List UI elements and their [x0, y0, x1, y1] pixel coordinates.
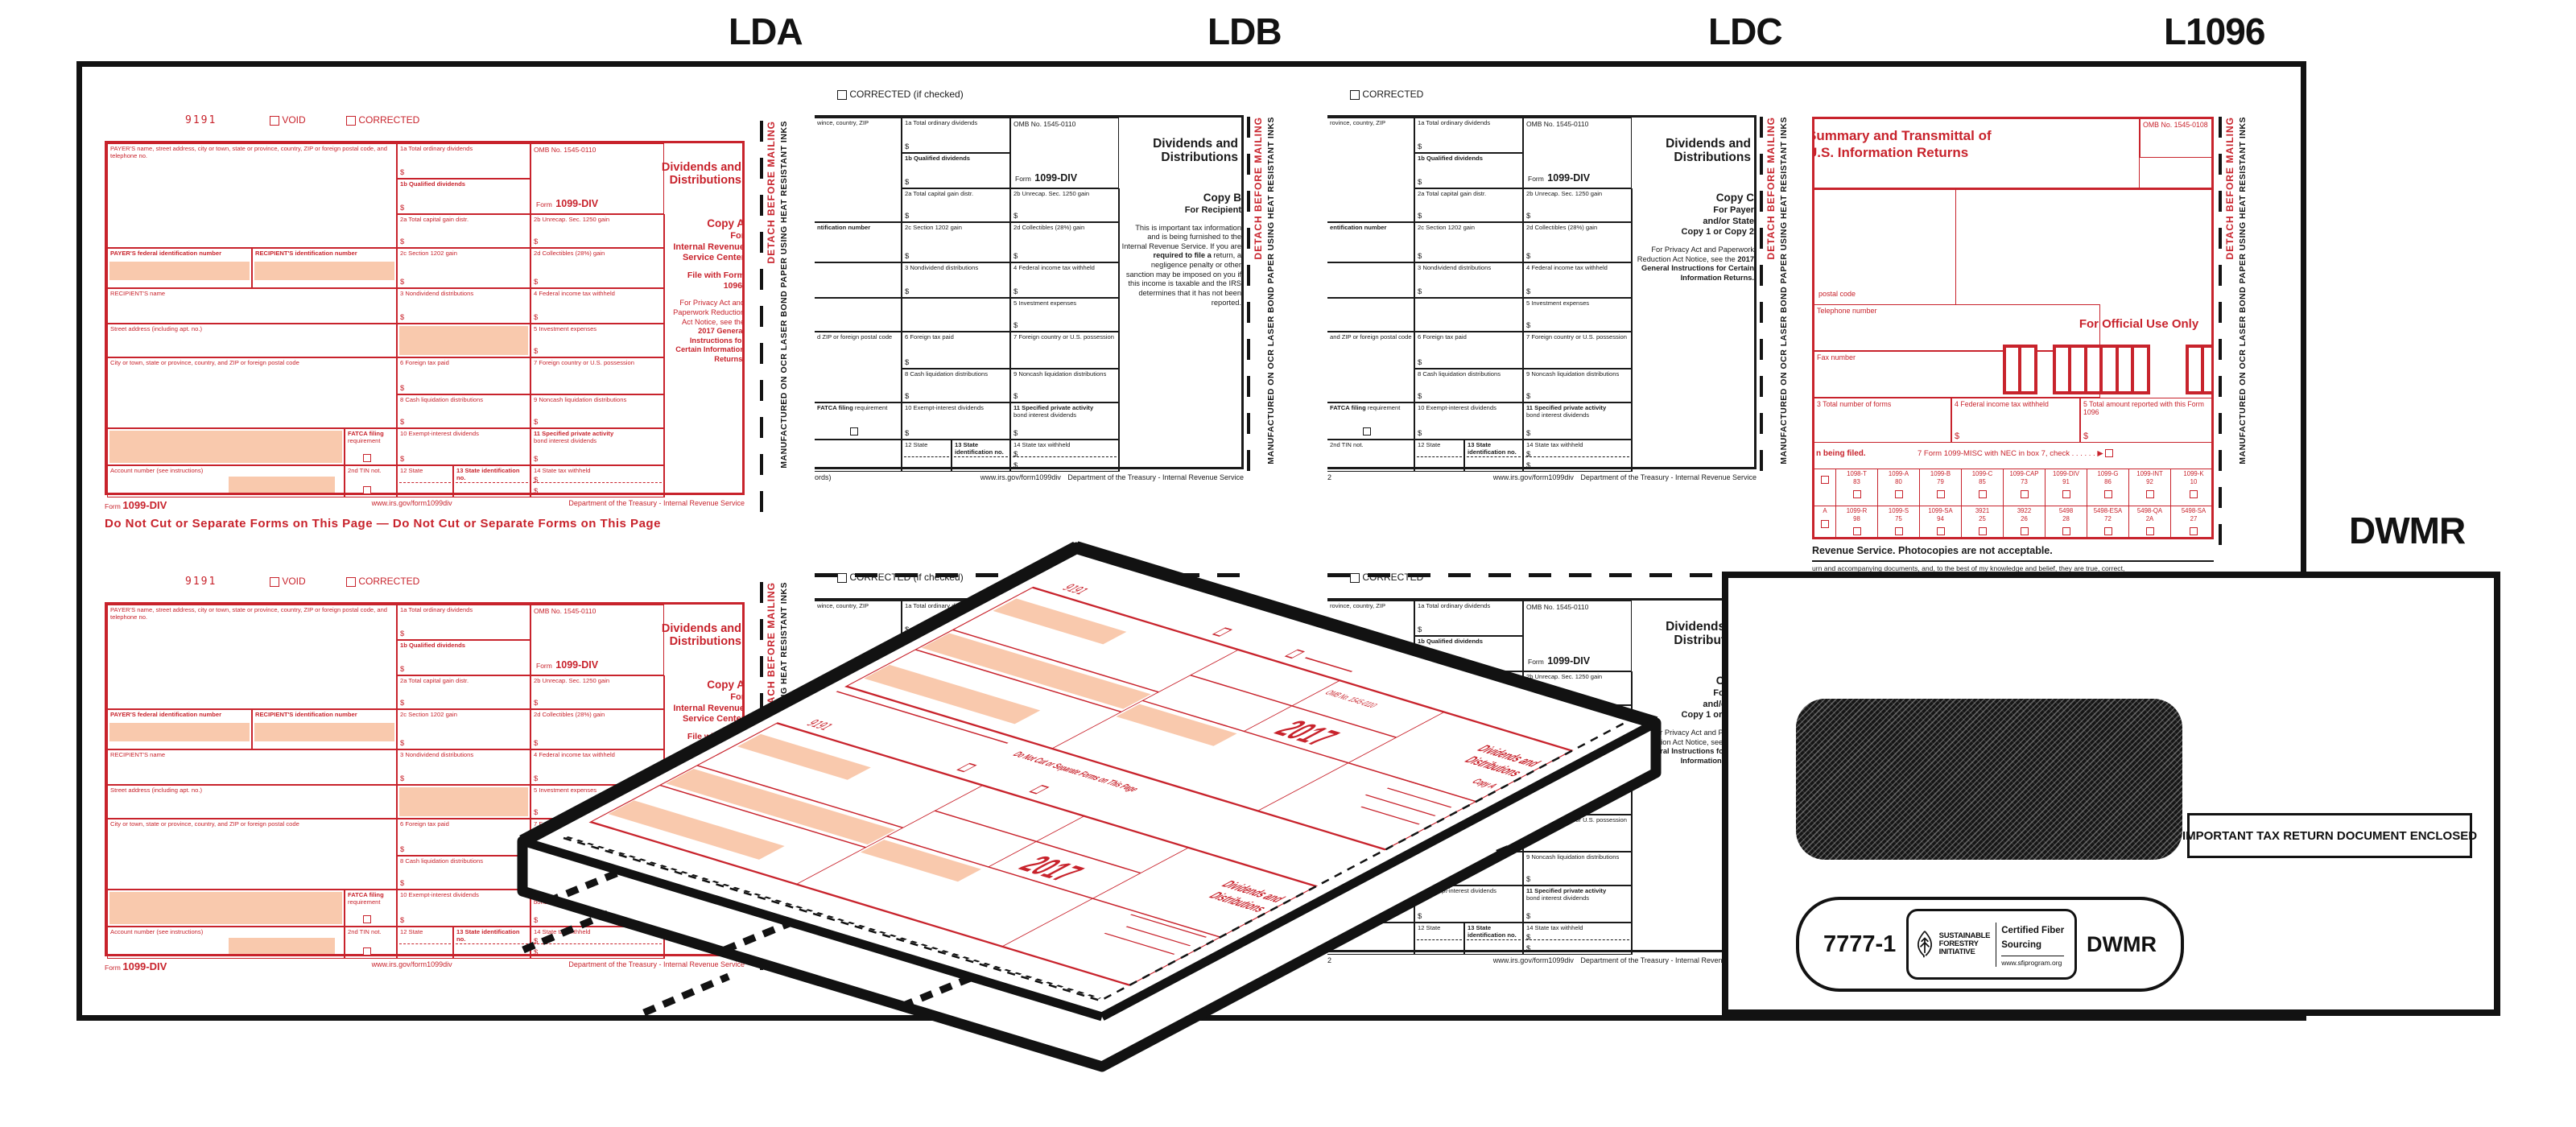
- grid-cell: 1098-T83: [1835, 469, 1877, 506]
- form-word: Form: [1015, 175, 1031, 183]
- grid-checkbox-icon: [1979, 490, 1987, 498]
- fatca-label2: requirement: [348, 437, 381, 444]
- box-1a-cell: 1a Total ordinary dividends$: [902, 118, 1010, 153]
- scan-code: 9191: [185, 576, 217, 588]
- dollar-sign: $: [534, 237, 538, 246]
- grid-cell: 1099-INT92: [2128, 469, 2170, 506]
- dollar-sign: $: [1418, 358, 1422, 367]
- corrected-label: CORRECTED (if checked): [849, 89, 963, 100]
- box-9-cell: 9 Noncash liquidation distributions$: [530, 394, 664, 428]
- grid-cell: 1099-G86: [2087, 469, 2128, 506]
- comb-box: [2131, 345, 2150, 394]
- copy-for-line2: Internal Revenue: [667, 242, 745, 254]
- box-1a-label: 1a Total ordinary dividends: [1418, 120, 1521, 127]
- footer-dept: Department of the Treasury - Internal Re…: [1067, 473, 1244, 481]
- fatca-label: FATCA filing: [817, 404, 853, 411]
- grid-cell: 5498-QA2A: [2128, 506, 2170, 539]
- city-label: City or town, state or province, country…: [110, 360, 394, 367]
- tin-label: 2nd TIN not.: [348, 929, 394, 936]
- important-document-banner: IMPORTANT TAX RETURN DOCUMENT ENCLOSED: [2187, 813, 2472, 858]
- dollar-sign: $: [905, 287, 909, 296]
- box-8-label: 8 Cash liquidation distributions: [400, 397, 528, 404]
- omb-label: OMB No. 1545-0110: [1013, 120, 1117, 128]
- box-1b-cell: 1b Qualified dividends$: [397, 179, 530, 214]
- recipient-name-cell: RECIPIENT'S name: [107, 749, 397, 785]
- note-head: For Privacy Act and Paperwork Reduction …: [673, 299, 745, 325]
- payer-name-cell: wince, country, ZIP: [815, 118, 902, 222]
- grid-cell-partial: A: [1814, 506, 1835, 539]
- box-7-label: 7 Foreign country or U.S. possession: [1526, 334, 1629, 341]
- box-4-label: 4 Federal income tax withheld: [1955, 400, 2078, 408]
- recipient-name-cell: [815, 262, 902, 298]
- grid-checkbox-icon: [1895, 527, 1903, 535]
- dollar-sign: $: [1418, 212, 1422, 221]
- dollar-sign: $: [905, 212, 909, 221]
- grid-checkbox-icon: [1937, 490, 1945, 498]
- dollar-sign: $: [400, 455, 404, 464]
- dollar-sign: $: [1418, 392, 1422, 401]
- grid-checkbox-icon: [2146, 527, 2154, 535]
- envelope-part-number: 7777-1: [1823, 931, 1896, 958]
- blank-cell: [902, 298, 1010, 332]
- name-area-divider: [1955, 188, 1956, 304]
- box-2a-label: 2a Total capital gain distr.: [905, 191, 1008, 198]
- grid-checkbox-icon: [1895, 490, 1903, 498]
- copy-label: Copy A: [667, 217, 745, 231]
- form-1099div-copy-a-top: 9191 VOID CORRECTED PAYER'S name, street…: [105, 103, 745, 542]
- box-7-cell: 7 Foreign country or U.S. possession: [1523, 332, 1632, 369]
- grid-cell: 1099-R98: [1835, 506, 1877, 539]
- tin-cell: 2nd TIN not.: [345, 927, 397, 959]
- box-1b-label: 1b Qualified dividends: [1418, 155, 1521, 163]
- box-9-cell: 9 Noncash liquidation distributions$: [1523, 369, 1632, 402]
- box-12-label: 12 State: [1418, 442, 1462, 449]
- dollar-sign: $: [1526, 321, 1530, 330]
- manufactured-on-ocr-text: MANUFACTURED ON OCR LASER BOND PAPER USI…: [1779, 117, 1789, 464]
- omb-label: OMB No. 1545-0110: [1526, 120, 1629, 128]
- dollar-sign: $: [1526, 287, 1530, 296]
- dashed-rule: [1417, 456, 1462, 457]
- corrected-label: CORRECTED: [358, 114, 419, 126]
- grid-checkbox-icon: [2021, 527, 2029, 535]
- city-label: d ZIP or foreign postal code: [817, 334, 899, 341]
- box-3-label: 3 Nondividend distributions: [1418, 265, 1521, 272]
- dollar-sign: $: [1418, 429, 1422, 438]
- corrected-checkbox: CORRECTED: [346, 114, 419, 126]
- grid-form-code: 92: [2129, 478, 2170, 485]
- box-3-cell: 3 Nondividend distributions$: [1414, 262, 1523, 298]
- entry-area: [109, 723, 250, 741]
- box-2a-cell: 2a Total capital gain distr.$: [1414, 188, 1523, 222]
- dollar-sign: $: [400, 699, 404, 708]
- grid-form-name: 1098-T: [1836, 471, 1877, 478]
- box-11-label: 11 Specified private activity: [1013, 404, 1093, 411]
- recipient-id-cell: RECIPIENT'S identification number: [252, 709, 397, 749]
- product-sheet: LDA LDB LDC L1096 DWMR 9191 VOID CORRECT…: [0, 0, 2576, 1127]
- fatca-cell: FATCA filingrequirement: [345, 428, 397, 465]
- void-label: VOID: [282, 114, 305, 126]
- box-2d-cell: 2d Collectibles (28%) gain$: [1523, 222, 1632, 262]
- grid-form-name: 1099-CAP: [2004, 471, 2045, 478]
- dollar-sign: $: [400, 879, 404, 888]
- shaded-band-cell: [107, 428, 345, 465]
- box-14-cell: 14 State tax withheld$$: [1010, 440, 1119, 472]
- box-9-label: 9 Noncash liquidation distributions: [534, 397, 662, 404]
- grid-form-code: 94: [1920, 515, 1961, 522]
- box-9-label: 9 Noncash liquidation distributions: [1013, 371, 1117, 378]
- id-cell: ntification number: [815, 222, 902, 262]
- street-cell: Street address (including apt. no.): [107, 785, 397, 819]
- street-cell: [1327, 298, 1414, 332]
- box-8-cell: 8 Cash liquidation distributions$: [902, 369, 1010, 402]
- box-4-cell: 4 Federal income tax withheld$: [1951, 398, 2080, 443]
- being-filed-fragment: n being filed.: [1816, 449, 1866, 458]
- footer-left: ords): [815, 473, 832, 481]
- grid-form-code: 75: [1878, 515, 1919, 522]
- tin-cell: 2nd TIN not.: [345, 465, 397, 497]
- box-12-cell: 12 State: [1414, 440, 1464, 472]
- grid-checkbox-icon: [2104, 490, 2112, 498]
- account-cell: Account number (see instructions): [107, 465, 345, 497]
- grid-form-name: 1099-SA: [1920, 508, 1961, 515]
- box-3-label: 3 Nondividend distributions: [400, 291, 528, 298]
- box-1a-cell: 1a Total ordinary dividends$: [1414, 118, 1523, 153]
- dollar-sign: $: [2083, 431, 2088, 441]
- grid-checkbox-icon: [1853, 527, 1861, 535]
- box-2a-cell: 2a Total capital gain distr.$: [902, 188, 1010, 222]
- account-label: Account number (see instructions): [110, 929, 342, 936]
- box-5-label: 5 Investment expenses: [1526, 300, 1629, 308]
- official-use-comb-boxes: [2189, 345, 2214, 394]
- detach-before-mailing-text: DETACH BEFORE MAILING: [766, 121, 777, 263]
- dollar-sign: $: [1013, 429, 1018, 438]
- box-13-cell: 13 State identification no.: [952, 440, 1010, 472]
- box-1b-label: 1b Qualified dividends: [400, 181, 528, 188]
- omb-label: OMB No. 1545-0110: [534, 146, 662, 154]
- dollar-sign: $: [400, 845, 404, 854]
- grid-checkbox-icon: [1853, 490, 1861, 498]
- omb-cell: OMB No. 1545-0108: [2140, 119, 2214, 158]
- void-checkbox: VOID: [270, 576, 306, 587]
- manufactured-on-ocr-text: MANUFACTURED ON OCR LASER BOND PAPER USI…: [779, 121, 789, 469]
- dollar-sign: $: [905, 178, 909, 187]
- grid-form-code: 72: [2087, 515, 2128, 522]
- sfi-url: www.sfiprogram.org: [2001, 956, 2064, 967]
- dollar-sign: $: [1418, 142, 1422, 151]
- box-6-label: 6 Foreign tax paid: [400, 360, 528, 367]
- grid-form-code: 26: [2004, 515, 2045, 522]
- grid-cell: 1099-A80: [1877, 469, 1919, 506]
- box-5-cell: 5 Investment expenses$: [1523, 298, 1632, 332]
- dollar-sign: $: [400, 739, 404, 748]
- grid-checkbox-icon: [2021, 490, 2029, 498]
- box-6-label: 6 Foreign tax paid: [1418, 334, 1521, 341]
- footer-url: www.irs.gov/form1099div: [372, 960, 452, 968]
- official-use-comb-boxes: [2056, 345, 2150, 394]
- envelope-dwmr: IMPORTANT TAX RETURN DOCUMENT ENCLOSED 7…: [1722, 572, 2500, 1016]
- dollar-sign: $: [1955, 431, 1959, 441]
- grid-form-code: 86: [2087, 478, 2128, 485]
- sfi-name: SUSTAINABLEFORESTRYINITIATIVE: [1939, 932, 1991, 956]
- entry-area: [229, 938, 335, 954]
- form-1096-title-cell: Summary and Transmittal ofU.S. Informati…: [1814, 119, 2140, 188]
- box-2c-label: 2c Section 1202 gain: [905, 225, 1008, 232]
- corrected-checkbox: CORRECTED (if checked): [837, 89, 964, 100]
- id-label: ntification number: [817, 225, 899, 232]
- title-divider: [1814, 188, 2214, 190]
- grid-form-code: 73: [2004, 478, 2045, 485]
- form-1099div-copy-b-top: CORRECTED (if checked) wince, country, Z…: [815, 77, 1244, 488]
- box-14-label: 14 State tax withheld: [1013, 442, 1117, 449]
- grid-form-name: 1099-DIV: [2046, 471, 2087, 478]
- fatca-label2: requirement: [348, 898, 381, 906]
- box-2c-cell: 2c Section 1202 gain$: [902, 222, 1010, 262]
- grid-cell: 1099-S75: [1877, 506, 1919, 539]
- grid-cell: 1099-SA94: [1919, 506, 1961, 539]
- perforation-dashed-line: [760, 121, 763, 519]
- dollar-sign: $: [1418, 287, 1422, 296]
- box-13-label: 13 State identification no.: [955, 442, 1008, 456]
- sfi-cert-text: Certified FiberSourcing www.sfiprogram.o…: [1996, 923, 2064, 967]
- box-3-label: 3 Nondividend distributions: [905, 265, 1008, 272]
- perforation-dashed-line: [1247, 117, 1250, 487]
- tin-label: 2nd TIN not.: [1330, 442, 1412, 449]
- dot-leaders: . . . . . .: [2072, 449, 2095, 458]
- box-5-label: 5 Total amount reported with this Form 1…: [2083, 400, 2214, 417]
- checkbox-icon: [270, 577, 279, 587]
- box-10-cell: 10 Exempt-interest dividends$: [902, 402, 1010, 440]
- form-title: Dividends and Distributions: [1632, 137, 1751, 165]
- grid-form-name: 1099-B: [1920, 471, 1961, 478]
- grid-form-code: 25: [1962, 515, 2003, 522]
- grid-checkbox-icon: [2146, 490, 2154, 498]
- copy-for-line1: For Recipient: [1121, 205, 1241, 217]
- dollar-sign: $: [905, 252, 909, 261]
- box-9-label: 9 Noncash liquidation distributions: [1526, 371, 1629, 378]
- dollar-sign: $: [1526, 252, 1530, 261]
- grid-form-name: 1099-S: [1878, 508, 1919, 515]
- fatca-label2: requirement: [1368, 404, 1401, 411]
- tin-cell: 2nd TIN not.: [1327, 440, 1414, 472]
- scan-code: 9191: [185, 114, 217, 126]
- grid-form-code: 27: [2171, 515, 2214, 522]
- dollar-sign: $: [534, 487, 538, 496]
- box-10-label: 10 Exempt-interest dividends: [1418, 405, 1521, 412]
- recipient-id-cell: RECIPIENT'S identification number: [252, 248, 397, 288]
- box-2c-cell: 2c Section 1202 gain$: [1414, 222, 1523, 262]
- box-13-label: 13 State identification no.: [456, 468, 528, 482]
- copy-info-column: Copy A For Internal Revenue Service Cent…: [664, 214, 747, 497]
- box-14-cell: 14 State tax withheld$$: [530, 465, 664, 497]
- note-tail: return, a negligence penalty or other sa…: [1126, 251, 1241, 306]
- dollar-sign: $: [400, 916, 404, 925]
- form-1096-box: Summary and Transmittal ofU.S. Informati…: [1812, 117, 2214, 539]
- grid-cell: 1099-B79: [1919, 469, 1961, 506]
- street-label: Street address (including apt. no.): [110, 787, 394, 795]
- recipient-name-cell: RECIPIENT'S name: [107, 288, 397, 324]
- form-1099div-box: wince, country, ZIP ntification number d…: [815, 115, 1244, 469]
- city-cell: City or town, state or province, country…: [107, 819, 397, 890]
- envelope-window: [1796, 699, 2182, 860]
- label-dwmr: DWMR: [2349, 509, 2465, 552]
- recipient-name-label: RECIPIENT'S name: [110, 752, 394, 759]
- recipient-name-cell: [1327, 262, 1414, 298]
- arrow-icon: ▶: [2097, 449, 2103, 458]
- box-11-label2: bond interest dividends: [1526, 411, 1589, 419]
- fatca-label2: requirement: [855, 404, 888, 411]
- dollar-sign: $: [400, 237, 404, 246]
- box-8-cell: 8 Cash liquidation distributions$: [397, 394, 530, 428]
- detach-before-mailing-text: DETACH BEFORE MAILING: [1253, 117, 1264, 259]
- entry-area: [109, 892, 342, 924]
- blank-cell: [1414, 298, 1523, 332]
- footer-form-word: Form: [105, 502, 121, 510]
- copy-for-line1: For Payer: [1634, 205, 1754, 217]
- box-6-cell: 6 Foreign tax paid$: [902, 332, 1010, 369]
- form-1096-title-line2: U.S. Information Returns: [1812, 145, 1968, 160]
- box-7-label: 7 Form 1099-MISC with NEC in box 7, chec…: [1918, 449, 2070, 458]
- tin-cell: [815, 440, 902, 472]
- sfi-certification-box: SUSTAINABLEFORESTRYINITIATIVE Certified …: [1906, 909, 2077, 980]
- box-11-cell: 11 Specified private activitybond intere…: [530, 428, 664, 465]
- grid-form-name: 5498-SA: [2171, 508, 2214, 515]
- box-12-label: 12 State: [400, 468, 451, 475]
- box-5-cell: 5 Investment expenses$: [1010, 298, 1119, 332]
- grid-form-name: 1099-A: [1878, 471, 1919, 478]
- dollar-sign: $: [400, 313, 404, 322]
- form-type-grid: 1098-T83 1099-A80 1099-B79 1099-C85 1099…: [1814, 469, 2214, 539]
- detach-strip-lda-top: DETACH BEFORE MAILING MANUFACTURED ON OC…: [760, 121, 789, 519]
- box-14-label: 14 State tax withheld: [1526, 442, 1629, 449]
- dollar-sign: $: [1526, 450, 1530, 459]
- fatca-label: FATCA filing: [348, 430, 384, 437]
- dollar-sign: $: [1013, 212, 1018, 221]
- account-label: Account number (see instructions): [110, 468, 342, 475]
- dashed-rule: [954, 456, 1008, 457]
- grid-form-name: 1099-K: [2171, 471, 2214, 478]
- dollar-sign: $: [400, 630, 404, 638]
- city-cell: d ZIP or foreign postal code: [815, 332, 902, 402]
- box-5-label: 5 Investment expenses: [1013, 300, 1117, 308]
- copy-info-column: Copy B For Recipient This is important t…: [1119, 188, 1244, 472]
- privacy-note: For Privacy Act and Paperwork Reduction …: [667, 299, 745, 364]
- payer-name-label: rovince, country, ZIP: [1330, 120, 1412, 127]
- label-lda: LDA: [729, 10, 803, 53]
- street-label: Street address (including apt. no.): [110, 326, 394, 333]
- box-2b-cell: 2b Unrecap. Sec. 1250 gain$: [530, 214, 664, 248]
- comb-box: [2018, 345, 2037, 394]
- box-10-cell: 10 Exempt-interest dividends$: [397, 428, 530, 465]
- box-7-checkbox-icon: [2105, 449, 2113, 457]
- dollar-sign: $: [534, 455, 538, 464]
- box-3-cell: 3 Total number of forms: [1814, 398, 1951, 443]
- box-11-cell: 11 Specified private activitybond intere…: [1523, 402, 1632, 440]
- street-cell: Street address (including apt. no.): [107, 324, 397, 357]
- dollar-sign: $: [400, 665, 404, 674]
- entry-area: [229, 477, 335, 493]
- dollar-sign: $: [534, 476, 538, 485]
- shaded-band-cell: [107, 890, 345, 927]
- box-11-label: 11 Specified private activity: [1526, 404, 1606, 411]
- box-4-label: 4 Federal income tax withheld: [1526, 265, 1629, 272]
- rule: [1812, 560, 2214, 562]
- box-2a-label: 2a Total capital gain distr.: [400, 217, 528, 224]
- form-1096: Summary and Transmittal ofU.S. Informati…: [1812, 117, 2214, 609]
- fatca-cell: FATCA filing requirement: [815, 402, 902, 440]
- corrected-checkbox: CORRECTED: [1350, 89, 1423, 100]
- dollar-sign: $: [905, 429, 909, 438]
- label-ldc: LDC: [1708, 10, 1782, 53]
- box-13-cell: 13 State identification no.: [1464, 440, 1523, 472]
- footer-url: www.irs.gov/form1099div: [980, 473, 1061, 481]
- box-1a-label: 1a Total ordinary dividends: [905, 120, 1008, 127]
- box-11-label: 11 Specified private activity: [534, 430, 613, 437]
- form-1099div-box: PAYER'S name, street address, city or to…: [105, 141, 745, 495]
- box-2b-label: 2b Unrecap. Sec. 1250 gain: [1013, 191, 1117, 198]
- dollar-sign: $: [400, 278, 404, 287]
- dollar-sign: $: [1418, 178, 1422, 187]
- fatca-label: FATCA filing: [348, 891, 384, 898]
- box-6-label: 6 Foreign tax paid: [905, 334, 1008, 341]
- copy-note: For Privacy Act and Paperwork Reduction …: [1634, 246, 1754, 283]
- box-7-cell: 7 Foreign country or U.S. possession: [1010, 332, 1119, 369]
- city-label: and ZIP or foreign postal code: [1330, 334, 1412, 341]
- box-12-label: 12 State: [400, 929, 451, 936]
- checkbox-icon: [346, 577, 356, 587]
- detach-before-mailing-text: DETACH BEFORE MAILING: [1765, 117, 1777, 259]
- dollar-sign: $: [1013, 252, 1018, 261]
- postal-code-label: postal code: [1818, 290, 2210, 299]
- box-7-cell: 7 Foreign country or U.S. possession: [530, 357, 664, 394]
- grid-form-code: 10: [2171, 478, 2214, 485]
- dollar-sign: $: [400, 384, 404, 393]
- fatca-cell: FATCA filing requirement: [1327, 402, 1414, 440]
- grid-checkbox-icon: [1937, 527, 1945, 535]
- box-13-cell: 13 State identification no.: [453, 465, 530, 497]
- id-label: entification number: [1330, 225, 1412, 232]
- grid-cell: 5498-SA27: [2170, 506, 2214, 539]
- checkbox-icon: [1350, 90, 1360, 100]
- dollar-sign: $: [400, 204, 404, 213]
- form-1096-title-line1: Summary and Transmittal of: [1812, 128, 1992, 143]
- grid-form-name: 1099-R: [1836, 508, 1877, 515]
- copy-for-line2: and/or State: [1634, 217, 1754, 228]
- grid-checkbox-icon: [1821, 476, 1829, 484]
- footer-dept: Department of the Treasury - Internal Re…: [568, 499, 745, 507]
- forms-stack-3d: 9191 OMB No. 1545-0110 2017 Dividends an…: [483, 515, 1707, 1127]
- grid-form-name: 5498-QA: [2129, 508, 2170, 515]
- dollar-sign: $: [534, 418, 538, 427]
- dollar-sign: $: [905, 392, 909, 401]
- copy-for-line1: For: [667, 231, 745, 242]
- tin-checkbox-icon: [363, 947, 371, 956]
- file-with-label: File with Form 1096.: [667, 270, 745, 291]
- detach-before-mailing-text: DETACH BEFORE MAILING: [2224, 117, 2235, 259]
- form-name: 1099-DIV: [555, 198, 598, 209]
- box-3-cell: 3 Nondividend distributions$: [397, 288, 530, 324]
- dollar-sign: $: [1526, 429, 1530, 438]
- box-11-cell: 11 Specified private activitybond intere…: [1010, 402, 1119, 440]
- grid-form-name: 5498-ESA: [2087, 508, 2128, 515]
- footer-url: www.irs.gov/form1099div: [1493, 473, 1574, 481]
- payer-name-label: PAYER'S name, street address, city or to…: [110, 607, 394, 621]
- box-8-label: 8 Cash liquidation distributions: [1418, 371, 1521, 378]
- grid-checkbox-icon: [1821, 520, 1829, 528]
- street-cell: [815, 298, 902, 332]
- form-name: 1099-DIV: [1547, 172, 1590, 184]
- box-12-cell: 12 State: [902, 440, 952, 472]
- grid-form-code: 83: [1836, 478, 1877, 485]
